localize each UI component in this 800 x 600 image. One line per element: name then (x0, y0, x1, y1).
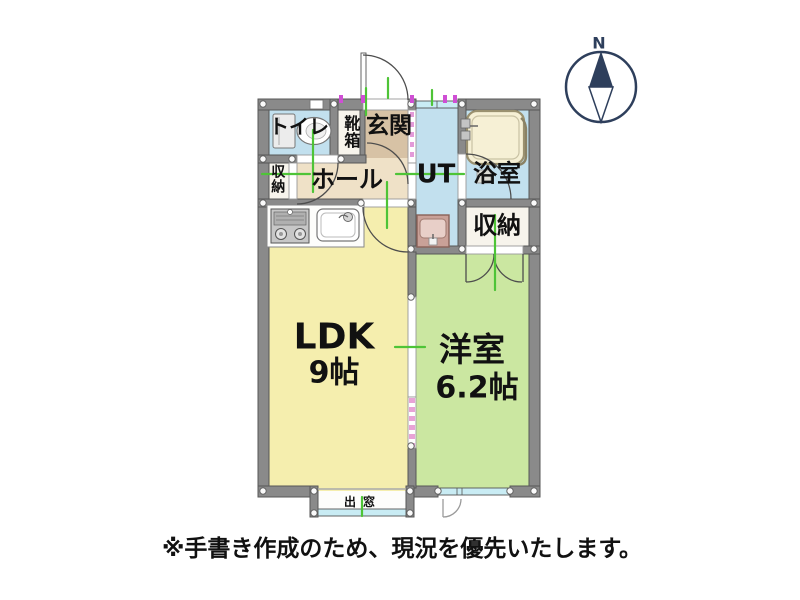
western-window-door (443, 499, 461, 517)
ldk-label: LDK (294, 318, 375, 355)
shoe-cabinet-label: 靴箱 (342, 115, 359, 149)
western-room-size-label: 6.2帖 (435, 372, 518, 403)
bathroom-label: 浴室 (473, 162, 521, 187)
hall-ut-opening (408, 163, 416, 199)
western-room-label: 洋室 (439, 333, 505, 367)
disclaimer-note: ※手書き作成のため、現況を優先いたします。 (162, 538, 642, 562)
washbasin-icon (417, 215, 449, 247)
utility-label: UT (417, 161, 456, 188)
hall-label: ホール (311, 168, 383, 193)
compass-needle-south (589, 87, 613, 122)
compass-north-label: N (592, 36, 605, 53)
bath-faucet-icon (461, 119, 470, 128)
storage-left-door (289, 163, 297, 199)
sliding-door (408, 397, 416, 448)
ldk-size-label: 9帖 (309, 357, 360, 388)
toilet-window (310, 100, 323, 109)
bathroom-door-opening (458, 154, 466, 199)
compass-needle-north (589, 51, 613, 87)
kitchen-sink-icon (317, 209, 359, 241)
toilet-door-opening (297, 155, 338, 163)
ldk-door-opening (363, 199, 408, 207)
western-window (438, 488, 510, 495)
storage-left-label: 収納 (270, 164, 285, 194)
kitchen-counter-icon (267, 205, 364, 247)
floorplan-drawing (0, 0, 800, 600)
bay-window-label: 出窓 (344, 496, 382, 508)
entrance-opening (363, 99, 408, 110)
entrance-door-arc (363, 55, 408, 100)
toilet-label: トイレ (269, 117, 329, 138)
entrance-label: 玄関 (366, 115, 412, 139)
kitchen-stove-icon (271, 209, 309, 243)
floorplan-page: N トイレ 靴箱 玄関 収納 ホール UT 浴室 収納 LDK 9帖 洋室 6.… (0, 0, 800, 600)
compass-icon (566, 51, 636, 122)
storage-right-label: 収納 (473, 214, 521, 239)
